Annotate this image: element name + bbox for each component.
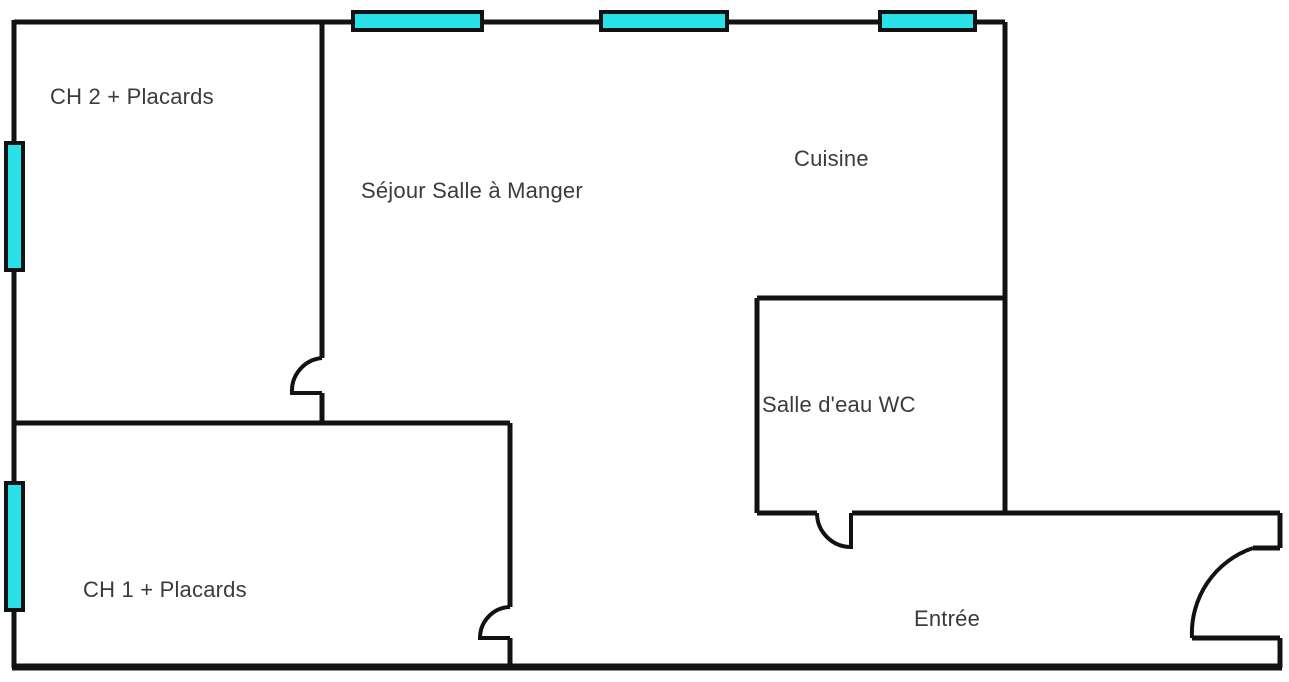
top-wall-window-cuisine [880,12,975,30]
top-wall-window-sejour [353,12,482,30]
room-label-sejour: Séjour Salle à Manger [361,178,583,204]
room-label-entree: Entrée [914,606,980,632]
door-swing-ch1 [480,607,510,638]
door-swing-salle-eau [817,513,851,547]
room-label-ch1: CH 1 + Placards [83,577,247,603]
door-swing-ch2 [292,358,322,393]
top-wall-window-sejour-cuisine [601,12,727,30]
left-wall-window-ch2 [6,143,23,270]
room-label-cuisine: Cuisine [794,146,869,172]
walls-outline [14,20,1280,668]
left-wall-window-ch1 [6,483,23,610]
room-label-ch2: CH 2 + Placards [50,84,214,110]
room-label-salle-eau: Salle d'eau WC [762,392,916,418]
floor-plan: CH 2 + Placards Séjour Salle à Manger Cu… [0,0,1289,682]
door-swing-entree [1192,548,1253,638]
